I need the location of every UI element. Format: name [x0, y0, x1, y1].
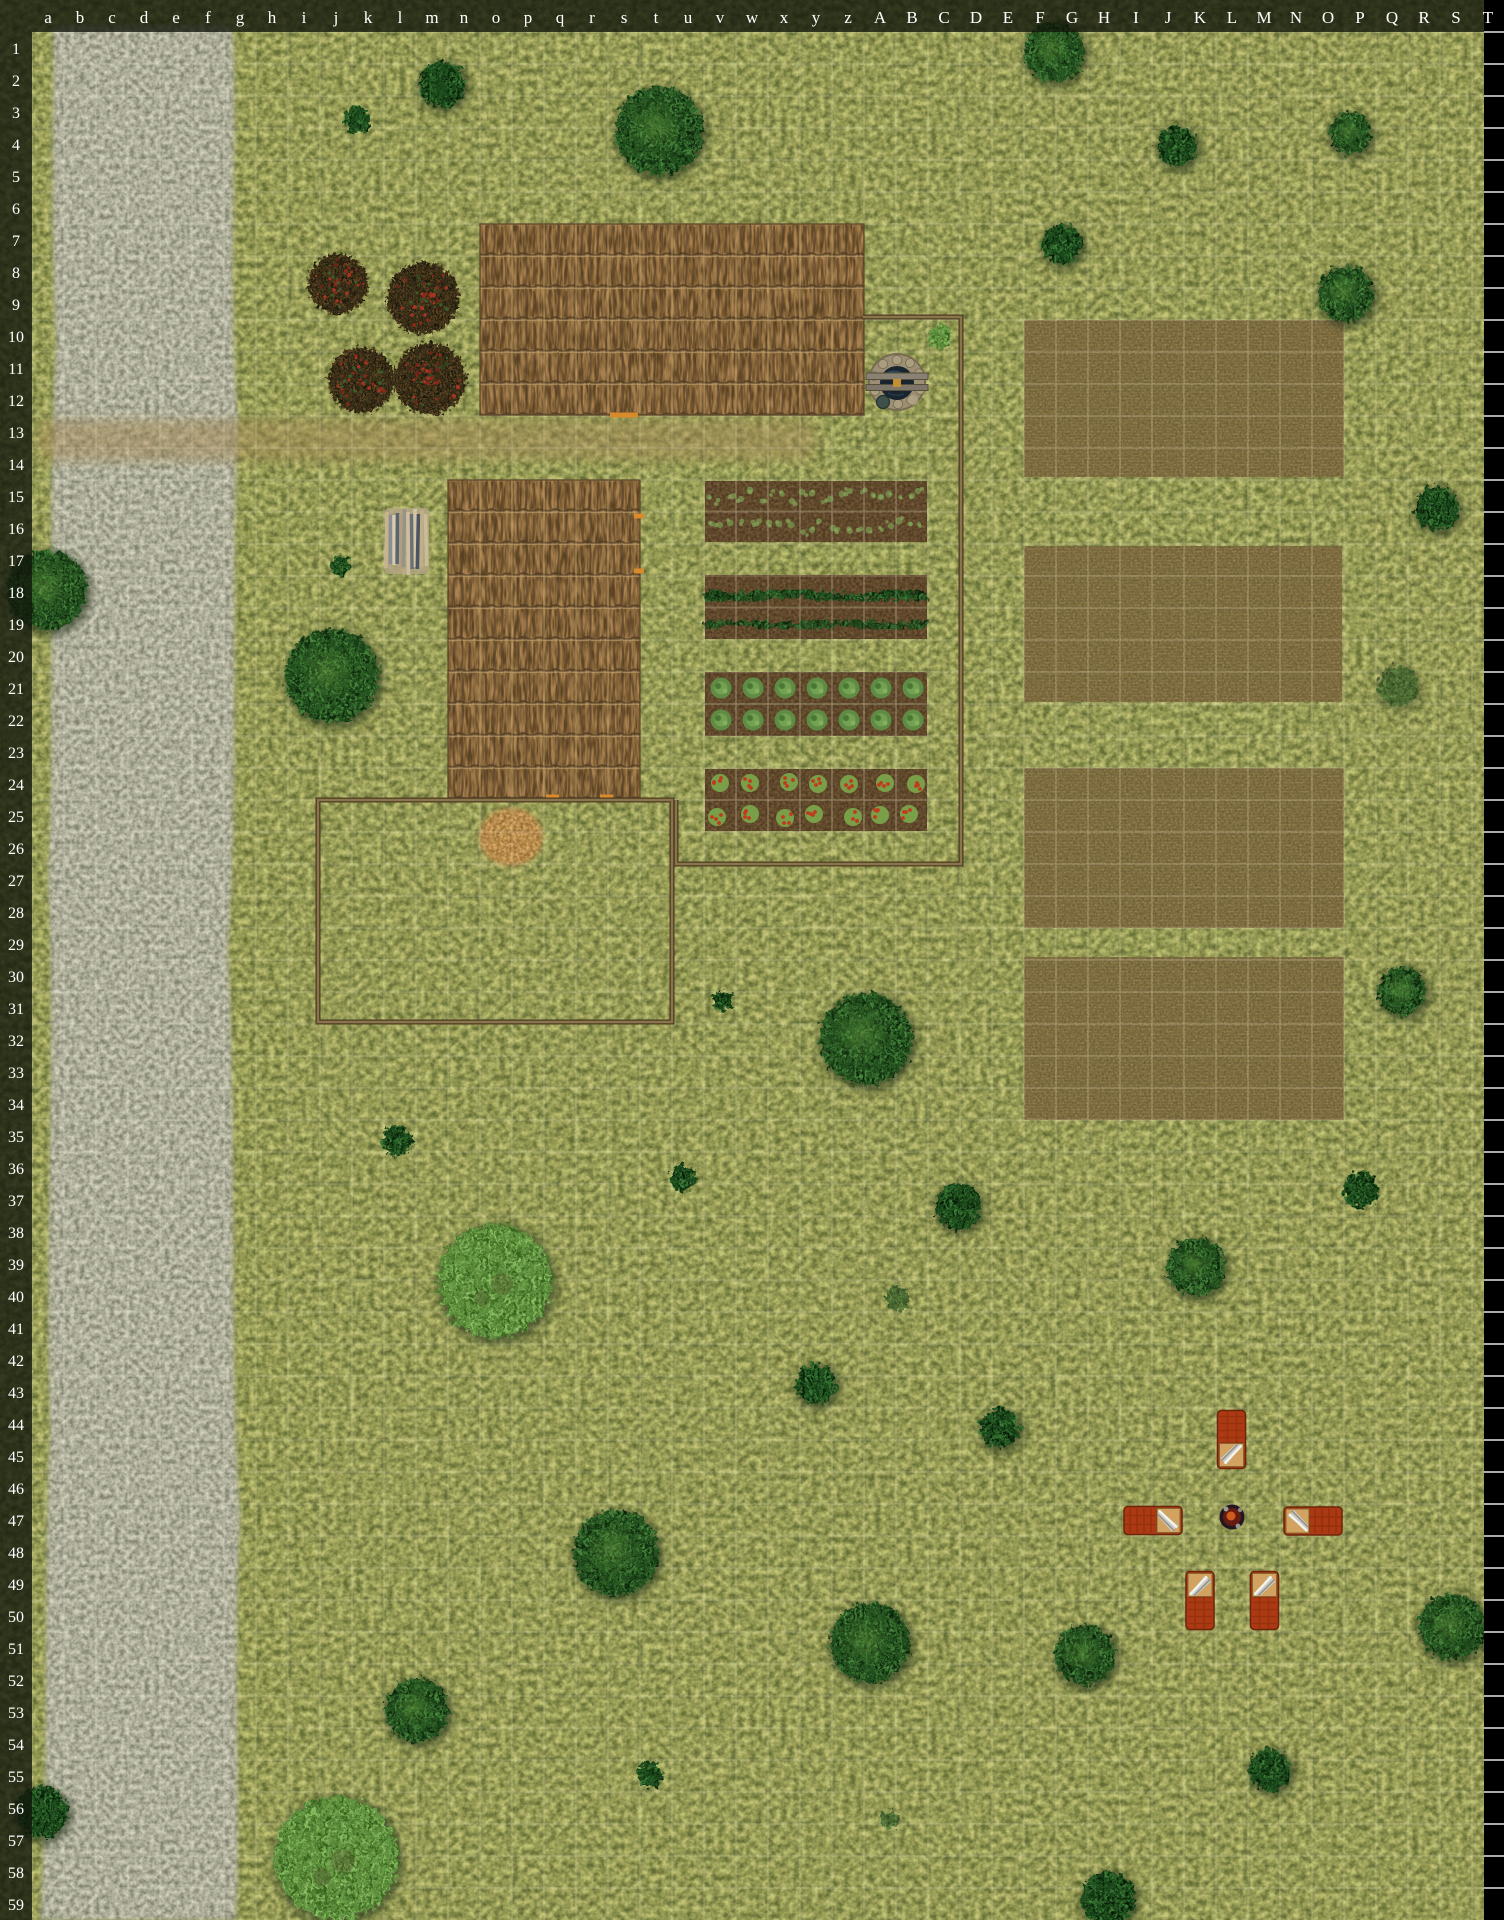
svg-text:H: H	[1098, 8, 1110, 27]
svg-text:3: 3	[12, 105, 20, 122]
svg-text:e: e	[172, 8, 180, 27]
svg-text:11: 11	[8, 361, 23, 378]
svg-text:T: T	[1483, 8, 1494, 27]
svg-text:C: C	[938, 8, 949, 27]
svg-text:49: 49	[8, 1577, 24, 1594]
svg-text:s: s	[621, 8, 628, 27]
svg-text:10: 10	[8, 329, 24, 346]
svg-text:20: 20	[8, 649, 24, 666]
svg-text:59: 59	[8, 1897, 24, 1914]
svg-text:57: 57	[8, 1833, 24, 1850]
svg-text:r: r	[589, 8, 595, 27]
svg-text:I: I	[1133, 8, 1139, 27]
svg-text:40: 40	[8, 1289, 24, 1306]
svg-text:47: 47	[8, 1513, 24, 1530]
svg-text:x: x	[780, 8, 789, 27]
svg-text:35: 35	[8, 1129, 24, 1146]
svg-text:S: S	[1451, 8, 1460, 27]
svg-text:15: 15	[8, 489, 24, 506]
svg-text:8: 8	[12, 265, 20, 282]
svg-text:30: 30	[8, 969, 24, 986]
svg-text:c: c	[108, 8, 116, 27]
svg-text:n: n	[460, 8, 469, 27]
svg-text:24: 24	[8, 777, 24, 794]
svg-text:R: R	[1418, 8, 1430, 27]
svg-text:21: 21	[8, 681, 24, 698]
svg-text:K: K	[1194, 8, 1207, 27]
svg-text:27: 27	[8, 873, 24, 890]
svg-text:9: 9	[12, 297, 20, 314]
svg-text:53: 53	[8, 1705, 24, 1722]
svg-text:J: J	[1165, 8, 1172, 27]
svg-text:O: O	[1322, 8, 1334, 27]
svg-text:39: 39	[8, 1257, 24, 1274]
svg-text:18: 18	[8, 585, 24, 602]
svg-text:17: 17	[8, 553, 24, 570]
svg-text:y: y	[812, 8, 821, 27]
svg-text:31: 31	[8, 1001, 24, 1018]
svg-text:33: 33	[8, 1065, 24, 1082]
svg-text:56: 56	[8, 1801, 24, 1818]
svg-text:45: 45	[8, 1449, 24, 1466]
svg-text:o: o	[492, 8, 501, 27]
svg-text:2: 2	[12, 73, 20, 90]
svg-text:5: 5	[12, 169, 20, 186]
svg-text:w: w	[746, 8, 759, 27]
svg-text:h: h	[268, 8, 277, 27]
svg-text:d: d	[140, 8, 149, 27]
svg-text:B: B	[906, 8, 917, 27]
svg-text:f: f	[205, 8, 211, 27]
svg-text:36: 36	[8, 1161, 24, 1178]
svg-text:L: L	[1227, 8, 1237, 27]
svg-text:4: 4	[12, 137, 20, 154]
svg-text:v: v	[716, 8, 725, 27]
svg-text:t: t	[654, 8, 659, 27]
svg-text:58: 58	[8, 1865, 24, 1882]
svg-text:46: 46	[8, 1481, 24, 1498]
svg-text:q: q	[556, 8, 565, 27]
svg-text:7: 7	[12, 233, 20, 250]
svg-text:Q: Q	[1386, 8, 1398, 27]
svg-text:a: a	[44, 8, 52, 27]
svg-text:M: M	[1256, 8, 1271, 27]
svg-text:55: 55	[8, 1769, 24, 1786]
svg-text:32: 32	[8, 1033, 24, 1050]
svg-text:28: 28	[8, 905, 24, 922]
svg-text:z: z	[844, 8, 852, 27]
svg-text:u: u	[684, 8, 693, 27]
svg-text:F: F	[1035, 8, 1044, 27]
svg-text:g: g	[236, 8, 245, 27]
svg-text:6: 6	[12, 201, 20, 218]
svg-text:m: m	[425, 8, 438, 27]
svg-text:N: N	[1290, 8, 1302, 27]
svg-text:34: 34	[8, 1097, 24, 1114]
svg-text:b: b	[76, 8, 85, 27]
svg-text:E: E	[1003, 8, 1013, 27]
svg-text:19: 19	[8, 617, 24, 634]
svg-text:29: 29	[8, 937, 24, 954]
svg-text:G: G	[1066, 8, 1078, 27]
svg-text:D: D	[970, 8, 982, 27]
svg-text:16: 16	[8, 521, 24, 538]
svg-text:26: 26	[8, 841, 24, 858]
svg-text:p: p	[524, 8, 533, 27]
svg-text:i: i	[302, 8, 307, 27]
svg-text:P: P	[1355, 8, 1364, 27]
svg-text:j: j	[333, 8, 339, 27]
svg-text:50: 50	[8, 1609, 24, 1626]
svg-text:44: 44	[8, 1417, 24, 1434]
svg-text:48: 48	[8, 1545, 24, 1562]
svg-text:51: 51	[8, 1641, 24, 1658]
svg-text:23: 23	[8, 745, 24, 762]
svg-text:13: 13	[8, 425, 24, 442]
svg-text:38: 38	[8, 1225, 24, 1242]
svg-text:22: 22	[8, 713, 24, 730]
svg-text:l: l	[398, 8, 403, 27]
svg-text:37: 37	[8, 1193, 24, 1210]
svg-text:43: 43	[8, 1385, 24, 1402]
svg-text:14: 14	[8, 457, 24, 474]
svg-text:A: A	[874, 8, 887, 27]
svg-text:12: 12	[8, 393, 24, 410]
svg-text:1: 1	[12, 41, 20, 58]
svg-text:41: 41	[8, 1321, 24, 1338]
svg-text:42: 42	[8, 1353, 24, 1370]
svg-text:k: k	[364, 8, 373, 27]
svg-text:54: 54	[8, 1737, 24, 1754]
svg-text:25: 25	[8, 809, 24, 826]
svg-text:52: 52	[8, 1673, 24, 1690]
